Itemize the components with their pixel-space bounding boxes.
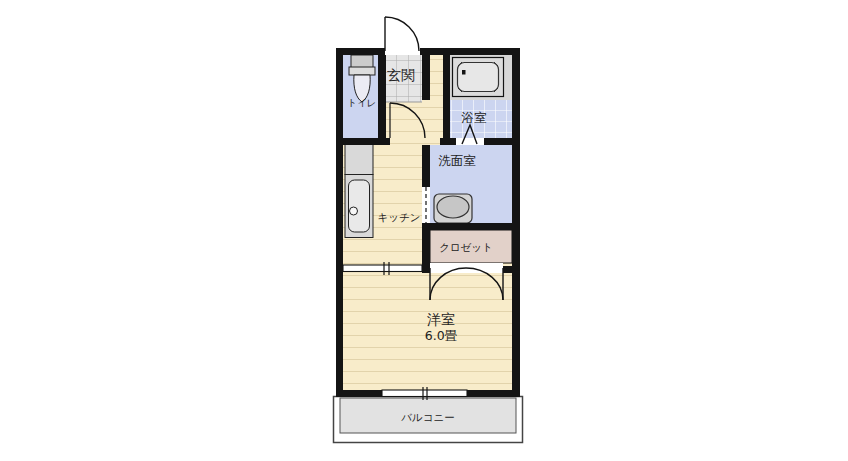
wall-top-left <box>336 48 385 55</box>
toilet-tank <box>351 55 373 68</box>
wall-bottom-right <box>467 390 520 397</box>
washroom-doorway <box>422 187 430 223</box>
bathroom-label: 浴室 <box>461 110 488 125</box>
floorplan-svg: 玄関 トイレ 浴室 洗面室 キッチン クロゼット 洋室 6.0畳 バルコニー <box>0 0 848 461</box>
western-room-label: 洋室 <box>427 311 455 327</box>
wall-genkan-stub <box>422 48 430 100</box>
partition-band <box>343 265 422 272</box>
wall-toilet-right <box>378 55 386 145</box>
balcony-label: バルコニー <box>400 411 454 423</box>
toilet-lid <box>349 67 375 75</box>
wall-closet-left <box>422 230 430 273</box>
kitchen-sink-basin <box>349 180 370 232</box>
bathtub-icon <box>450 55 512 100</box>
bathtub-drain <box>462 70 466 75</box>
wall-closet-stub-right <box>503 266 512 273</box>
wall-bath-wash-left <box>440 138 456 145</box>
wall-bathroom-left <box>443 48 450 145</box>
closet-label: クロゼット <box>439 241 493 253</box>
western-room-size-label: 6.0畳 <box>425 328 457 343</box>
kitchen-faucet-knob <box>350 207 358 215</box>
kitchen-counter-top <box>345 144 373 175</box>
washroom-label: 洗面室 <box>438 153 476 168</box>
wall-bath-wash-right <box>484 138 512 145</box>
wall-bottom-left <box>336 390 382 397</box>
balcony-window-band <box>382 390 467 397</box>
wall-below-toilet <box>336 138 390 145</box>
washbasin-bowl <box>437 196 469 218</box>
kitchen-sink-icon <box>345 144 373 238</box>
wall-washroom-closet <box>422 223 512 230</box>
floor-plan-page: 玄関 トイレ 浴室 洗面室 キッチン クロゼット 洋室 6.0畳 バルコニー <box>0 0 848 461</box>
washbasin-icon <box>434 194 472 223</box>
wall-washroom-left-upper <box>422 145 430 187</box>
wall-right <box>512 48 520 397</box>
bathtub-inner <box>458 63 499 92</box>
genkan-label: 玄関 <box>387 67 415 83</box>
wall-top-right <box>420 48 520 55</box>
kitchen-label: キッチン <box>378 211 421 223</box>
bathroom-door-gap <box>456 138 484 145</box>
toilet-label: トイレ <box>347 97 376 108</box>
wall-left <box>336 48 343 397</box>
entrance-door-swing-arc <box>385 17 419 51</box>
entrance-door <box>385 17 419 51</box>
